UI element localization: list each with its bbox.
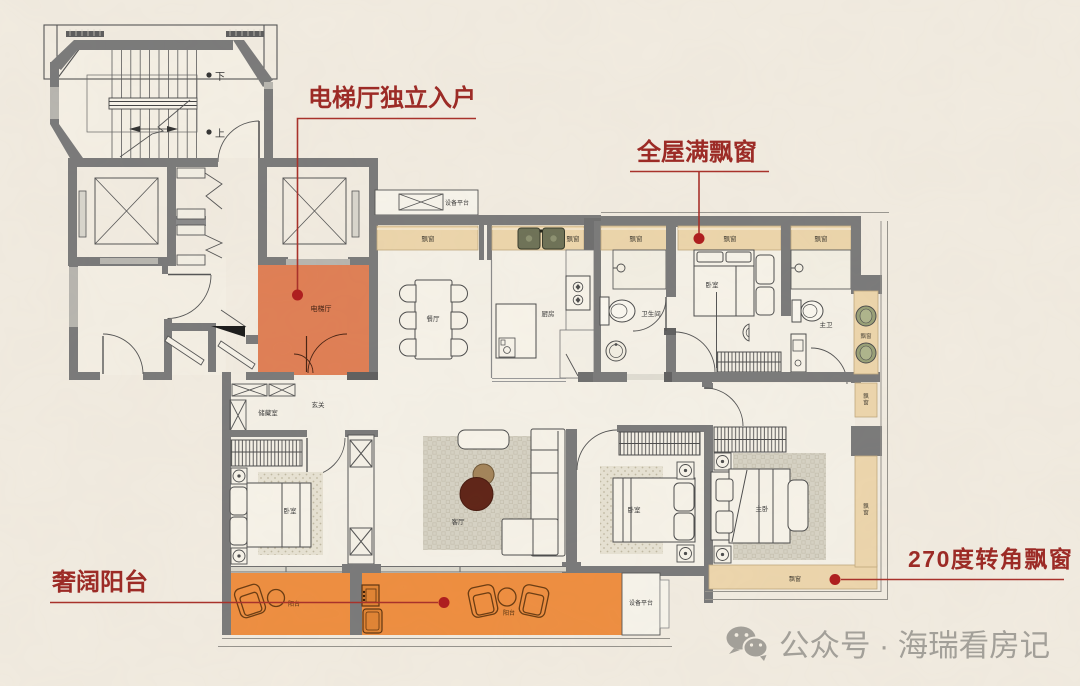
svg-text:奢阔阳台: 奢阔阳台 [51, 568, 148, 596]
svg-text:电梯厅独立入户: 电梯厅独立入户 [308, 84, 476, 112]
svg-text:全屋满飘窗: 全屋满飘窗 [636, 138, 757, 166]
svg-text:270度转角飘窗: 270度转角飘窗 [908, 546, 1073, 572]
svg-text:公众号 · 海瑞看房记: 公众号 · 海瑞看房记 [779, 629, 1050, 663]
